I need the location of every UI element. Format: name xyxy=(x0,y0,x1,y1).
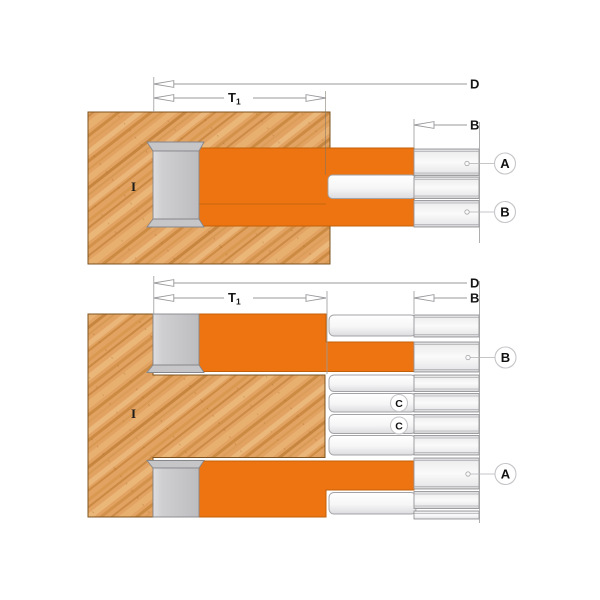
dim-label-b-top: B xyxy=(470,118,479,133)
bore-label-bottom: I xyxy=(131,406,136,421)
dim-label-t1-sub-top: 1 xyxy=(236,97,241,107)
dim-arrow-b-left-top xyxy=(414,122,434,129)
dim-label-t1-bottom: T1 xyxy=(228,290,241,307)
spacer-plate-mid xyxy=(414,177,479,199)
rim-plate-7 xyxy=(414,511,479,519)
view-extended: D T1 B B A C C I xyxy=(88,276,516,524)
dim-label-t1-top: T1 xyxy=(228,90,241,107)
leader-dot-b-bottom xyxy=(466,355,470,359)
dim-label-d-bottom: D xyxy=(470,276,479,291)
hub-flange-bottom xyxy=(147,219,204,227)
dim-label-t1-sub-bottom: 1 xyxy=(236,297,241,307)
leader-dot-a-top xyxy=(465,161,469,165)
callout-label-a-bottom: A xyxy=(501,467,511,482)
shim-plate-1 xyxy=(329,375,416,392)
arbor-hub-lower xyxy=(153,468,199,517)
callout-label-c2: C xyxy=(395,420,403,432)
leader-dot-a-bottom xyxy=(466,472,470,476)
view-assembled: D T1 B A B I xyxy=(88,77,516,265)
arbor-hub-upper xyxy=(153,314,199,365)
callout-label-b-top: B xyxy=(500,205,509,220)
dim-arrow-t1-right-bottom xyxy=(306,295,326,302)
hub-flange-upper xyxy=(147,365,204,373)
callout-label-b-bottom: B xyxy=(501,350,510,365)
hub-flange-lower xyxy=(147,461,204,469)
dim-label-t1-main-bottom: T xyxy=(228,290,236,305)
dim-arrow-d-left-top xyxy=(154,81,174,88)
dim-arrow-d-left-bottom xyxy=(154,280,174,287)
shim-plate-4 xyxy=(329,436,416,456)
arbor-hub-assembled xyxy=(153,151,199,219)
dim-arrow-b-left-bottom xyxy=(414,295,434,302)
callout-label-c1: C xyxy=(395,398,403,410)
bore-label-top: I xyxy=(131,179,136,194)
knife-pocket-upper xyxy=(329,315,416,336)
dim-label-t1-main-top: T xyxy=(228,90,236,105)
knife-in-slot xyxy=(328,175,416,199)
dim-label-b-bottom: B xyxy=(470,291,479,306)
dim-arrow-t1-right-top xyxy=(306,95,326,102)
knife-pocket-lower xyxy=(329,493,416,515)
cutter-diagram-svg: D T1 B A B I xyxy=(0,0,600,600)
leader-dot-b-top xyxy=(465,210,469,214)
callout-label-a-top: A xyxy=(500,156,510,171)
hub-flange-top xyxy=(147,142,204,151)
dim-arrow-t1-left-bottom xyxy=(154,295,174,302)
rim-plate-5 xyxy=(414,436,479,456)
dim-label-d-top: D xyxy=(470,77,479,92)
knife-plate-b xyxy=(414,201,479,228)
diagram-canvas: D T1 B A B I xyxy=(0,0,600,600)
rim-plate-1 xyxy=(414,315,479,337)
dim-arrow-t1-left-top xyxy=(154,95,174,102)
